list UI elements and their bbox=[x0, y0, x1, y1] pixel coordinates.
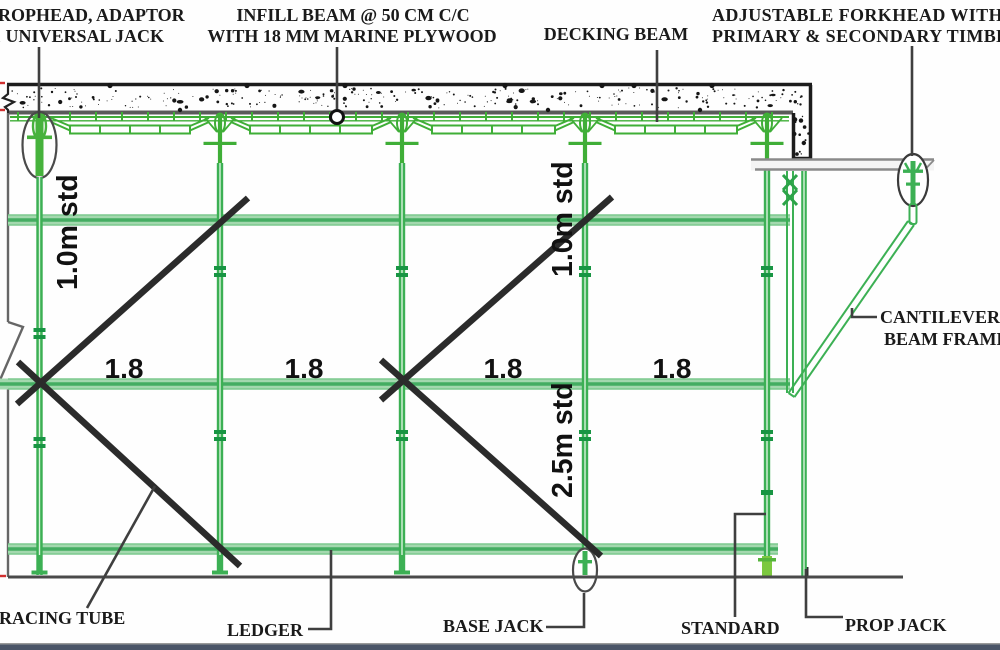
svg-text:& UNIVERSAL JACK: & UNIVERSAL JACK bbox=[0, 26, 164, 46]
svg-text:STANDARD: STANDARD bbox=[681, 618, 780, 638]
svg-text:1.8: 1.8 bbox=[285, 353, 324, 384]
svg-text:PRIMARY & SECONDARY TIMBER: PRIMARY & SECONDARY TIMBER bbox=[712, 26, 1000, 46]
svg-text:1.0m std: 1.0m std bbox=[52, 174, 84, 290]
svg-text:1.8: 1.8 bbox=[653, 353, 692, 384]
svg-text:2.5m std: 2.5m std bbox=[547, 382, 579, 498]
svg-text:PROPHEAD, ADAPTOR: PROPHEAD, ADAPTOR bbox=[0, 5, 186, 25]
svg-text:BRACING TUBE: BRACING TUBE bbox=[0, 608, 125, 628]
svg-text:ADJUSTABLE FORKHEAD WITH: ADJUSTABLE FORKHEAD WITH bbox=[712, 5, 1000, 25]
svg-text:INFILL BEAM @ 50 CM C/C: INFILL BEAM @ 50 CM C/C bbox=[236, 5, 469, 25]
svg-text:PROP JACK: PROP JACK bbox=[845, 615, 947, 635]
svg-text:BEAM FRAME: BEAM FRAME bbox=[884, 329, 1000, 349]
svg-text:1.8: 1.8 bbox=[484, 353, 523, 384]
svg-text:1.0m std: 1.0m std bbox=[547, 161, 579, 277]
svg-text:WITH 18 MM MARINE PLYWOOD: WITH 18 MM MARINE PLYWOOD bbox=[207, 26, 496, 46]
svg-text:LEDGER: LEDGER bbox=[227, 620, 304, 640]
svg-text:CANTILEVER: CANTILEVER bbox=[880, 307, 1000, 327]
svg-text:1.8: 1.8 bbox=[105, 353, 144, 384]
svg-text:BASE JACK: BASE JACK bbox=[443, 616, 544, 636]
svg-text:DECKING BEAM: DECKING BEAM bbox=[544, 24, 689, 44]
